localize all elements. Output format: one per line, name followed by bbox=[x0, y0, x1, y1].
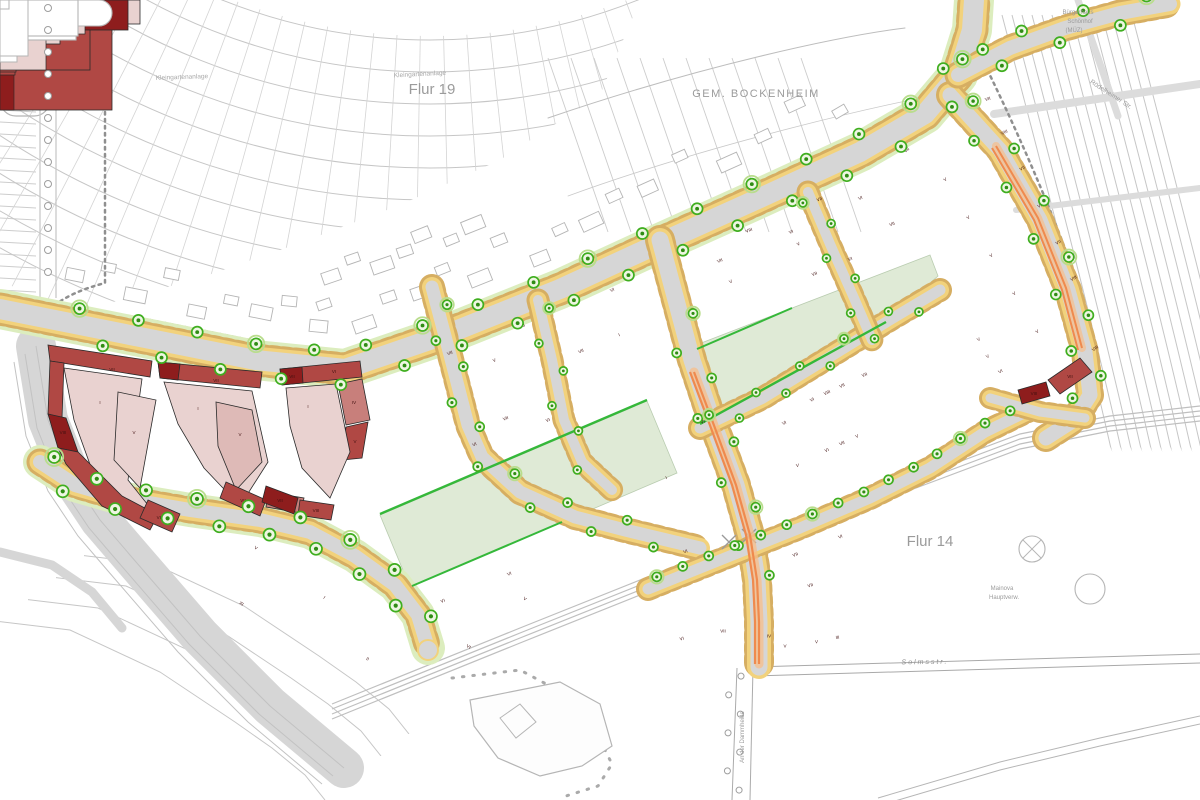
tree-icon bbox=[903, 96, 920, 113]
tree-icon bbox=[472, 299, 483, 310]
building-floor-label: I bbox=[322, 595, 326, 600]
tree-icon bbox=[45, 159, 52, 166]
building-floor-label: V bbox=[492, 357, 497, 363]
building-floor-label: I bbox=[197, 406, 198, 411]
building-floor-label: V bbox=[942, 177, 947, 183]
tree-icon bbox=[834, 498, 843, 507]
tree-icon bbox=[188, 490, 206, 508]
tree-icon bbox=[559, 367, 567, 375]
building-floor-label: V bbox=[253, 545, 258, 551]
tree-icon bbox=[933, 449, 942, 458]
building-floor-label: VII bbox=[289, 374, 295, 379]
tree-icon bbox=[693, 414, 702, 423]
building: V bbox=[728, 279, 733, 285]
tree-icon bbox=[309, 344, 320, 355]
building: V bbox=[942, 177, 947, 183]
tree-icon bbox=[649, 543, 658, 552]
tree-icon bbox=[946, 101, 957, 112]
tree-icon bbox=[853, 129, 864, 140]
building-floor-label: VI bbox=[440, 598, 446, 604]
building-row: VII bbox=[502, 415, 509, 422]
building-floor-label: VII bbox=[838, 440, 845, 447]
building-floor-label: V bbox=[815, 639, 818, 644]
building-row: V bbox=[854, 433, 859, 439]
tree-icon bbox=[884, 307, 892, 315]
label-solmsstr: Solmsstr. bbox=[901, 659, 948, 667]
building-floor-label: V bbox=[965, 215, 970, 221]
building bbox=[286, 384, 350, 498]
building-row: V bbox=[492, 357, 497, 363]
tree-icon bbox=[735, 414, 743, 422]
tree-icon bbox=[969, 136, 979, 146]
building: VI bbox=[609, 287, 615, 293]
existing-buildings bbox=[321, 215, 486, 286]
building-row: VII bbox=[861, 371, 868, 378]
tree-icon bbox=[826, 362, 834, 370]
tree-icon bbox=[703, 409, 715, 421]
tree-icon bbox=[726, 692, 732, 698]
tree-icon bbox=[45, 269, 52, 276]
tree-icon bbox=[707, 373, 716, 382]
building-floor-label: IV bbox=[767, 634, 771, 639]
tree-icon bbox=[996, 60, 1007, 71]
tree-icon bbox=[475, 422, 484, 431]
tree-icon bbox=[543, 302, 555, 314]
tree-icon bbox=[1006, 406, 1015, 415]
tree-icon bbox=[140, 484, 152, 496]
map-label: (MÜZ) bbox=[1066, 27, 1083, 34]
tree-icon bbox=[1039, 196, 1049, 206]
building-floor-label: VI bbox=[679, 636, 684, 642]
building-floor-label: VII bbox=[109, 367, 115, 372]
label-kleingarten-1: Kleingartenanlage bbox=[156, 73, 209, 82]
tree-icon bbox=[548, 402, 556, 410]
tree-icon bbox=[399, 360, 410, 371]
building-floor-label: V bbox=[976, 336, 981, 342]
building-floor-label: VII bbox=[807, 582, 814, 589]
tree-icon bbox=[414, 317, 431, 334]
tree-icon bbox=[456, 340, 467, 351]
building-row: VI bbox=[440, 598, 446, 604]
tree-icon bbox=[574, 427, 582, 435]
tree-icon bbox=[736, 787, 742, 793]
tree-icon bbox=[884, 475, 893, 484]
building: VII bbox=[577, 348, 584, 355]
map-poly bbox=[48, 361, 64, 418]
building-floor-label: V bbox=[783, 644, 786, 649]
building-floor-label: V bbox=[353, 439, 356, 444]
building-row: VI bbox=[781, 420, 787, 426]
building-row: VI bbox=[506, 571, 512, 577]
site-plan-svg: IVVIIVIIIVIVIIIVIIIVVIIVIVIVIIIVVIVIIVII… bbox=[0, 0, 1200, 800]
tree-icon bbox=[45, 93, 52, 100]
building: VI bbox=[997, 368, 1003, 374]
building-row: VI bbox=[809, 396, 815, 402]
church-block bbox=[470, 682, 612, 776]
tree-icon bbox=[841, 170, 852, 181]
tree-icon bbox=[752, 388, 760, 396]
building-floor-label: VII bbox=[1067, 374, 1073, 379]
tree-icon bbox=[360, 339, 371, 350]
tree-icon bbox=[1083, 310, 1093, 320]
parallel-lines bbox=[878, 716, 1200, 800]
tree-icon bbox=[1096, 371, 1106, 381]
tree-icon bbox=[310, 543, 322, 555]
building-row: VI bbox=[847, 256, 853, 262]
building-floor-label: VII bbox=[213, 378, 219, 383]
tree-icon bbox=[729, 437, 738, 446]
building: IV bbox=[767, 634, 771, 639]
building-floor-label: VII bbox=[277, 498, 283, 503]
building: V bbox=[815, 639, 818, 644]
map-line bbox=[732, 668, 737, 800]
tree-icon bbox=[263, 529, 275, 541]
building-floor-label: VI bbox=[609, 287, 615, 293]
tree-icon bbox=[587, 527, 596, 536]
building-floor-label: V bbox=[988, 253, 993, 259]
building-floor-label: VII bbox=[984, 96, 991, 102]
building: V bbox=[985, 353, 990, 359]
building-floor-label: VIII bbox=[1031, 391, 1038, 396]
tree-icon bbox=[1016, 26, 1027, 37]
tree-icon bbox=[1001, 182, 1011, 192]
label-kleingarten-2: Kleingartenanlage bbox=[394, 70, 447, 80]
map-label: Schönhof bbox=[1067, 19, 1093, 25]
tree-icon bbox=[341, 531, 359, 549]
tree-icon bbox=[580, 250, 597, 267]
building-floor-label: V bbox=[1034, 329, 1039, 335]
building-floor-label: IV bbox=[352, 400, 356, 405]
tree-icon bbox=[45, 247, 52, 254]
tree-icon bbox=[822, 254, 830, 262]
tree-icon bbox=[859, 487, 868, 496]
tree-icon bbox=[447, 398, 456, 407]
building: VII bbox=[984, 96, 991, 102]
tree-icon bbox=[704, 551, 713, 560]
tree-icon bbox=[1115, 20, 1126, 31]
tree-icon bbox=[335, 379, 346, 390]
building-floor-label: VIII bbox=[60, 430, 67, 435]
label-buergerhaus: Bürgerhaus bbox=[1062, 10, 1093, 16]
tree-icon bbox=[838, 333, 850, 345]
building: V bbox=[988, 253, 993, 259]
tree-icon bbox=[954, 432, 968, 446]
tree-icon bbox=[1029, 234, 1039, 244]
building-row: VI bbox=[857, 195, 863, 201]
tree-icon bbox=[294, 511, 306, 523]
tree-icon bbox=[512, 318, 523, 329]
building-floor-label: VIII bbox=[313, 508, 320, 513]
building-floor-label: V bbox=[728, 279, 733, 285]
tree-icon bbox=[827, 220, 835, 228]
tree-icon bbox=[717, 478, 726, 487]
building-floor-label: VII bbox=[720, 629, 726, 634]
tree-icon bbox=[672, 348, 681, 357]
tree-icon bbox=[91, 473, 103, 485]
building-floor-label: V bbox=[238, 432, 241, 437]
tree-icon bbox=[977, 44, 988, 55]
tree-icon bbox=[966, 94, 981, 109]
tree-icon bbox=[45, 448, 63, 466]
building-row: VII bbox=[838, 382, 845, 389]
building-floor-label: V bbox=[132, 430, 135, 435]
tree-icon bbox=[801, 154, 812, 165]
building: V bbox=[522, 596, 527, 602]
map-line bbox=[548, 28, 905, 118]
tree-icon bbox=[749, 500, 763, 514]
tree-icon bbox=[738, 673, 744, 679]
tree-icon bbox=[744, 176, 761, 193]
building: V bbox=[1034, 329, 1039, 335]
tree-icon bbox=[45, 5, 52, 12]
building: V bbox=[1011, 291, 1016, 297]
tree-icon bbox=[915, 308, 923, 316]
building-floor-label: VI bbox=[857, 195, 863, 201]
building-floor-label: VIII bbox=[823, 389, 831, 396]
tree-icon bbox=[568, 295, 579, 306]
site-plan-map: IVVIIVIIIVIVIIIVIIIVVIIVIVIVIIIVVIVIIVII… bbox=[0, 0, 1200, 800]
tree-icon bbox=[508, 467, 522, 481]
building-floor-label: VI bbox=[466, 643, 472, 650]
building: VII bbox=[720, 629, 726, 634]
tree-icon bbox=[45, 115, 52, 122]
tree-icon bbox=[573, 466, 581, 474]
tree-icon bbox=[45, 49, 52, 56]
street bbox=[0, 552, 122, 628]
building-row: VI bbox=[788, 229, 794, 235]
tree-icon bbox=[156, 352, 167, 363]
building-floor-label: VII bbox=[716, 257, 723, 264]
building: V bbox=[976, 336, 981, 342]
building: VI bbox=[679, 636, 684, 642]
building-floor-label: V bbox=[796, 463, 800, 468]
building-floor-label: VIII bbox=[745, 227, 753, 234]
building-floor-label: I bbox=[307, 404, 308, 409]
tree-icon bbox=[677, 245, 688, 256]
building-floor-label: V bbox=[796, 241, 801, 247]
tree-icon bbox=[847, 309, 855, 317]
building-floor-label: VII bbox=[811, 270, 818, 277]
building-floor-label: V bbox=[854, 433, 859, 439]
label-gemeinde: GEM. BOCKENHEIM bbox=[692, 88, 820, 100]
tree-icon bbox=[45, 137, 52, 144]
building-floor-label: I bbox=[618, 332, 621, 337]
tree-icon bbox=[938, 63, 949, 74]
building-row: VI bbox=[824, 447, 830, 453]
building: V bbox=[796, 463, 800, 468]
building-floor-label: VI bbox=[837, 533, 843, 539]
building-row: VIII bbox=[823, 389, 831, 396]
tree-icon bbox=[637, 228, 648, 239]
building-floor-label: VI bbox=[781, 420, 787, 426]
building-floor-label: VI bbox=[545, 417, 551, 423]
tree-icon bbox=[431, 336, 440, 345]
label-mainova: Mainova bbox=[991, 586, 1014, 592]
tree-icon bbox=[1009, 144, 1019, 154]
building-row: VII bbox=[716, 257, 723, 264]
tree-icon bbox=[459, 362, 468, 371]
tree-icon bbox=[276, 373, 287, 384]
building-floor-label: VI bbox=[824, 447, 830, 453]
tree-icon bbox=[692, 203, 703, 214]
tree-icon bbox=[192, 327, 203, 338]
building: I bbox=[322, 595, 326, 600]
tree-icon bbox=[954, 51, 971, 68]
tree-icon bbox=[57, 485, 69, 497]
map-poly bbox=[158, 362, 180, 380]
building-floor-label: VI bbox=[847, 256, 853, 262]
cul-de-sac bbox=[418, 640, 438, 660]
tree-icon bbox=[650, 570, 664, 584]
tree-icon bbox=[45, 203, 52, 210]
tree-icon bbox=[248, 336, 265, 353]
tree-icon bbox=[45, 71, 52, 78]
building-row: VI bbox=[545, 417, 551, 423]
building-floor-label: III bbox=[835, 635, 839, 640]
building-row: VII bbox=[811, 270, 818, 277]
tree-icon bbox=[623, 516, 632, 525]
tree-icon bbox=[756, 531, 765, 540]
building-floor-label: V bbox=[522, 596, 527, 602]
tree-icon bbox=[526, 503, 535, 512]
building-floor-label: VII bbox=[889, 221, 896, 228]
tree-icon bbox=[213, 520, 225, 532]
building-floor-label: I bbox=[99, 400, 100, 405]
tree-icon bbox=[389, 564, 401, 576]
building: I bbox=[618, 332, 621, 337]
building-floor-label: V bbox=[985, 353, 990, 359]
building-floor-label: VI bbox=[809, 396, 815, 402]
tree-icon bbox=[1066, 346, 1076, 356]
tree-icon bbox=[1061, 250, 1076, 265]
tree-icon bbox=[215, 364, 226, 375]
tree-icon bbox=[806, 507, 820, 521]
building: V bbox=[796, 241, 801, 247]
building: VII bbox=[792, 551, 799, 558]
building: V bbox=[253, 545, 258, 551]
tree-icon bbox=[97, 340, 108, 351]
building: V bbox=[783, 644, 786, 649]
tree-icon bbox=[45, 225, 52, 232]
building-floor-label: VI bbox=[332, 369, 336, 374]
building-floor-label: VI bbox=[997, 368, 1003, 374]
tree-icon bbox=[725, 730, 731, 736]
tree-icon bbox=[1068, 393, 1078, 403]
building: VIII bbox=[1000, 129, 1008, 137]
tree-icon bbox=[730, 541, 739, 550]
label-flur-19: Flur 19 bbox=[409, 81, 456, 98]
tree-icon bbox=[242, 500, 254, 512]
tree-icon bbox=[765, 571, 774, 580]
building: III bbox=[835, 635, 839, 640]
building-floor-label: VII bbox=[502, 415, 509, 422]
building-row: VIII bbox=[745, 227, 753, 234]
building: VI bbox=[466, 643, 472, 650]
tree-icon bbox=[109, 503, 121, 515]
tree-icon bbox=[353, 568, 365, 580]
building-row: VII bbox=[838, 440, 845, 447]
tree-icon bbox=[45, 181, 52, 188]
building-floor-label: VIII bbox=[1000, 129, 1008, 137]
building-floor-label: V bbox=[1011, 291, 1016, 297]
tree-icon bbox=[535, 339, 543, 347]
tree-icon bbox=[981, 419, 990, 428]
building-floor-label: VI bbox=[506, 571, 512, 577]
label-an-der-dammheide: An der Dammheide bbox=[740, 710, 746, 762]
tree-icon bbox=[909, 463, 918, 472]
tree-icon bbox=[1051, 290, 1061, 300]
tree-icon bbox=[732, 220, 743, 231]
tree-icon bbox=[425, 610, 437, 622]
building-floor-label: II bbox=[366, 656, 370, 662]
tree-icon bbox=[678, 562, 687, 571]
tree-icon bbox=[797, 197, 809, 209]
building-floor-label: VII bbox=[792, 551, 799, 558]
building: VII bbox=[807, 582, 814, 589]
building-row: VII bbox=[889, 221, 896, 228]
building-floor-label: VII bbox=[861, 371, 868, 378]
building-floor-label: VII bbox=[838, 382, 845, 389]
central-tram-street bbox=[660, 240, 759, 667]
tree-icon bbox=[623, 270, 634, 281]
tree-icon bbox=[45, 27, 52, 34]
tree-icon bbox=[71, 300, 88, 317]
building: II bbox=[366, 656, 370, 662]
map-line bbox=[750, 668, 753, 800]
building-floor-label: VI bbox=[788, 229, 794, 235]
map-label: Hauptverw. bbox=[989, 595, 1019, 601]
tree-icon bbox=[133, 315, 144, 326]
tree-icon bbox=[782, 520, 791, 529]
tree-icon bbox=[440, 298, 454, 312]
map-circle bbox=[1075, 574, 1105, 604]
tree-icon bbox=[390, 600, 402, 612]
tree-icon bbox=[796, 362, 804, 370]
building-floor-label: VII bbox=[577, 348, 584, 355]
tree-icon bbox=[528, 277, 539, 288]
tree-icon bbox=[563, 498, 572, 507]
tree-icon bbox=[896, 141, 907, 152]
tree-icon bbox=[473, 462, 482, 471]
label-flur-14: Flur 14 bbox=[907, 533, 954, 550]
tree-icon bbox=[724, 768, 730, 774]
tree-icon bbox=[782, 389, 790, 397]
tree-icon bbox=[686, 307, 700, 321]
tree-icon bbox=[1054, 37, 1065, 48]
building: VI bbox=[837, 533, 843, 539]
tree-icon bbox=[851, 274, 859, 282]
building: V bbox=[965, 215, 970, 221]
tree-icon bbox=[871, 335, 879, 343]
tree-icon bbox=[162, 512, 174, 524]
